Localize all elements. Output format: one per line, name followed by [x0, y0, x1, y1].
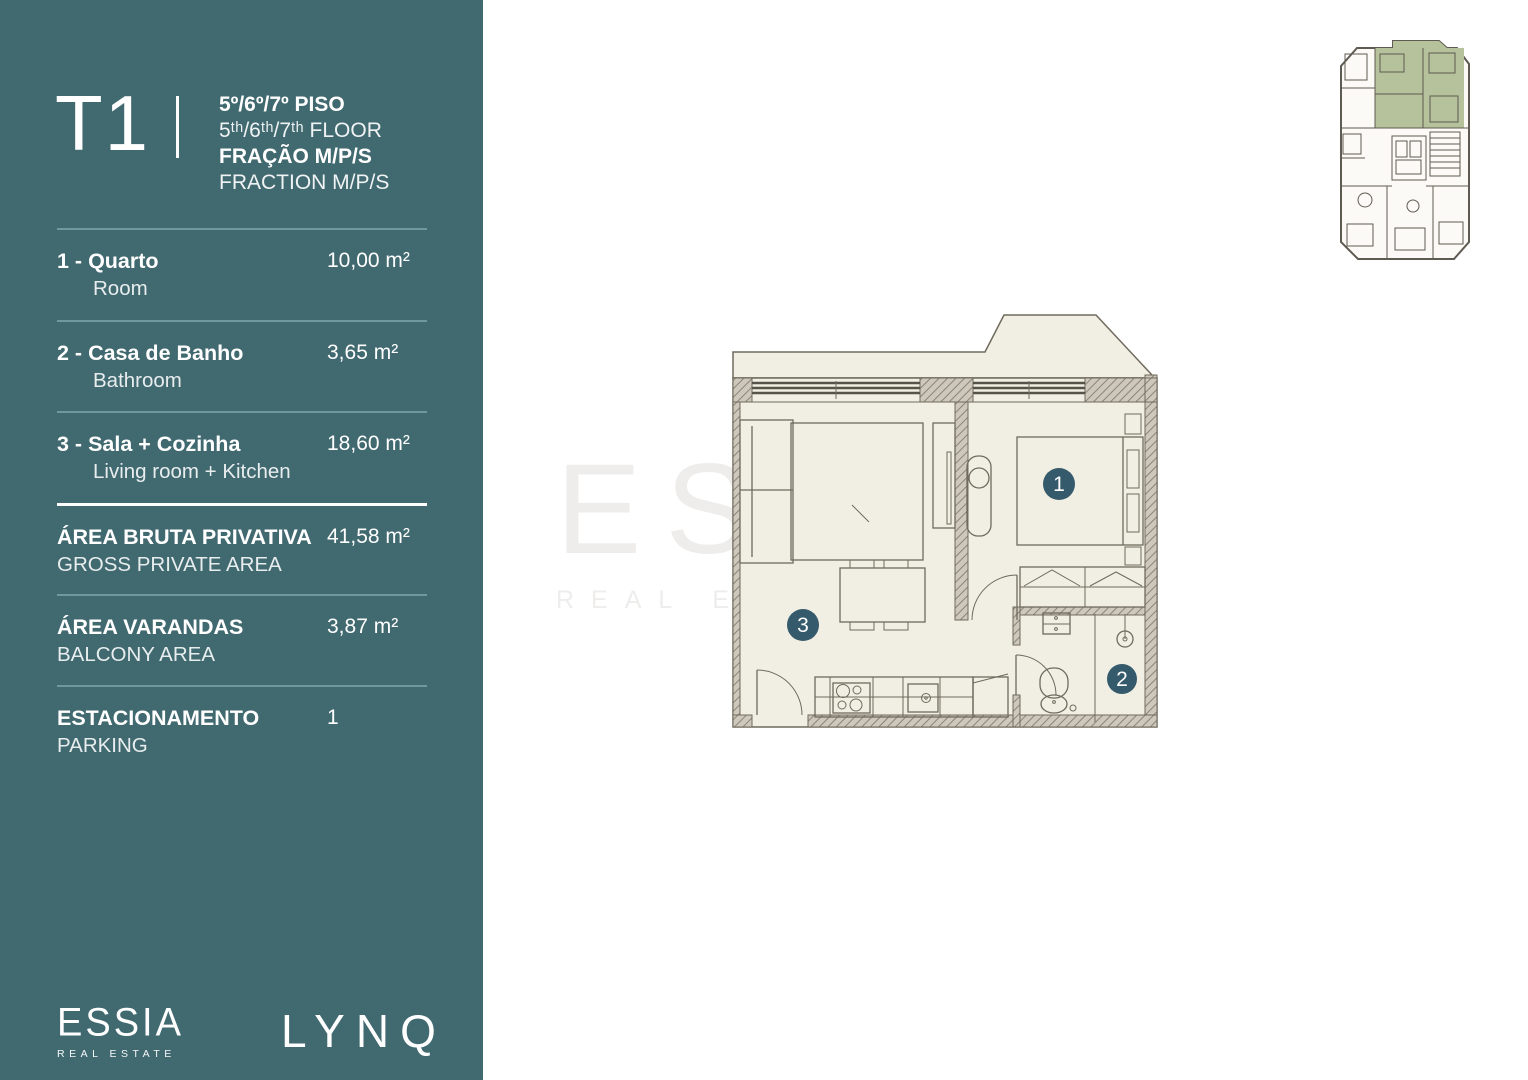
unit-type-label: T1 [55, 84, 150, 162]
room-marker-1: 1 [1043, 468, 1075, 500]
row-divider [57, 320, 427, 322]
lynq-logo: LYNQ [281, 1008, 447, 1054]
row-divider [57, 411, 427, 413]
table-row-parking: ESTACIONAMENTO PARKING 1 [57, 705, 427, 759]
apartment-floor [733, 378, 1157, 727]
fraction-label-en: FRACTION M/P/S [219, 170, 389, 196]
svg-text:2: 2 [1116, 668, 1128, 691]
row-divider-strong [57, 503, 427, 506]
svg-text:3: 3 [797, 614, 809, 637]
key-plan [1335, 38, 1475, 268]
room-marker-2: 2 [1107, 664, 1137, 694]
essia-logo-name: ESSIA [57, 1003, 184, 1043]
balcony-area-label-en: BALCONY AREA [57, 642, 427, 668]
gross-area-value: 41,58 m² [327, 524, 410, 550]
row-divider [57, 594, 427, 596]
floor-label-pt: 5º/6º/7º PISO [219, 92, 389, 118]
table-row-balcony-area: ÁREA VARANDAS BALCONY AREA 3,87 m² [57, 614, 427, 668]
row-divider [57, 228, 427, 230]
room-3-area: 18,60 m² [327, 431, 410, 457]
essia-logo: ESSIA REAL ESTATE [57, 1003, 184, 1060]
area-table: 1 - Quarto Room 10,00 m² 2 - Casa de Ban… [57, 228, 427, 758]
room-1-label-en: Room [93, 276, 427, 302]
header-floor-info: 5º/6º/7º PISO 5ᵗʰ/6ᵗʰ/7ᵗʰ FLOOR FRAÇÃO M… [219, 92, 389, 196]
balcony-outline [733, 315, 1152, 378]
table-row-room-2: 2 - Casa de Banho Bathroom 3,65 m² [57, 340, 427, 394]
svg-text:1: 1 [1053, 473, 1065, 496]
floorplan: 1 2 3 [726, 302, 1166, 732]
balcony-area-value: 3,87 m² [327, 614, 398, 640]
room-2-label-en: Bathroom [93, 368, 427, 394]
floor-label-en: 5ᵗʰ/6ᵗʰ/7ᵗʰ FLOOR [219, 118, 389, 144]
page: T1 5º/6º/7º PISO 5ᵗʰ/6ᵗʰ/7ᵗʰ FLOOR FRAÇÃ… [0, 0, 1528, 1080]
row-divider [57, 685, 427, 687]
fraction-label-pt: FRAÇÃO M/P/S [219, 144, 389, 170]
room-1-area: 10,00 m² [327, 248, 410, 274]
table-row-gross-area: ÁREA BRUTA PRIVATIVA GROSS PRIVATE AREA … [57, 524, 427, 578]
gross-area-label-en: GROSS PRIVATE AREA [57, 552, 427, 578]
room-3-label-en: Living room + Kitchen [93, 459, 427, 485]
table-row-room-3: 3 - Sala + Cozinha Living room + Kitchen… [57, 431, 427, 485]
room-2-area: 3,65 m² [327, 340, 398, 366]
sidebar: T1 5º/6º/7º PISO 5ᵗʰ/6ᵗʰ/7ᵗʰ FLOOR FRAÇÃ… [0, 0, 483, 1080]
header-divider [176, 96, 179, 158]
parking-label-pt: ESTACIONAMENTO [57, 705, 427, 731]
essia-logo-tagline: REAL ESTATE [57, 1048, 184, 1060]
parking-value: 1 [327, 705, 339, 731]
parking-label-en: PARKING [57, 733, 427, 759]
room-marker-3: 3 [787, 609, 819, 641]
table-row-room-1: 1 - Quarto Room 10,00 m² [57, 248, 427, 302]
